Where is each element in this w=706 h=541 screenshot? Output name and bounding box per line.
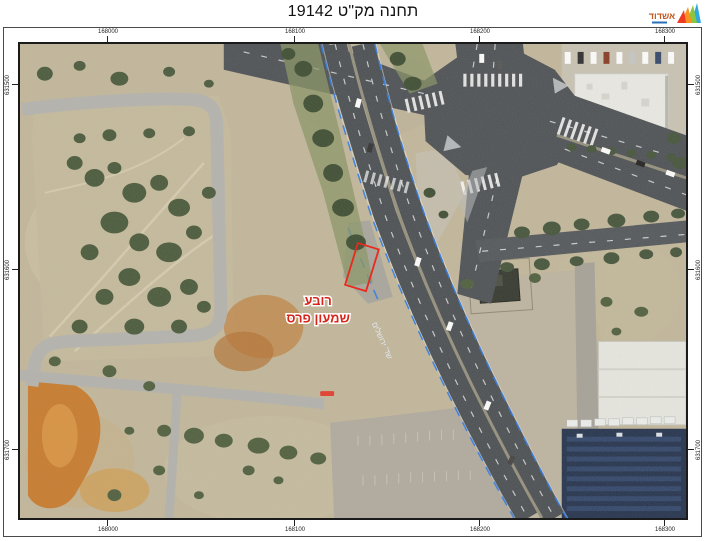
ashdod-logo-graphic: אשדוד [646, 2, 702, 28]
northing-label-right: 631600 [695, 252, 703, 288]
map-canvas: שד' ירושלים רובע שמעון פרס [18, 42, 688, 520]
district-label-line1: רובע [305, 293, 332, 308]
easting-label-top: 168000 [90, 29, 126, 36]
grid-tick [688, 84, 694, 85]
page-title: תחנה מק"ט 19142 [0, 3, 706, 21]
logo-city-name: אשדוד [649, 11, 675, 21]
small-red-marker [320, 391, 334, 396]
grid-tick [688, 449, 694, 450]
easting-label-bottom: 168000 [90, 527, 126, 534]
easting-label-top: 168200 [462, 29, 498, 36]
northing-label-right: 631500 [695, 67, 703, 103]
easting-label-bottom: 168300 [647, 527, 683, 534]
northing-label-left: 631600 [4, 252, 12, 288]
easting-label-top: 168100 [277, 29, 313, 36]
grid-tick [107, 520, 108, 526]
easting-label-bottom: 168100 [277, 527, 313, 534]
grid-tick [688, 269, 694, 270]
northing-label-left: 631500 [4, 67, 12, 103]
aerial-photo: שד' ירושלים רובע שמעון פרס [20, 44, 686, 518]
ashdod-logo: אשדוד [646, 2, 702, 28]
station-map-sheet: { "header": { "title": "תחנה מק\"ט 19142… [0, 0, 706, 541]
district-label-line2: שמעון פרס [286, 311, 349, 326]
grid-tick [294, 520, 295, 526]
photo-grain [20, 44, 686, 518]
northing-label-left: 631700 [4, 432, 12, 468]
logo-subtext-bar [652, 22, 667, 24]
grid-tick [479, 520, 480, 526]
easting-label-top: 168300 [647, 29, 683, 36]
easting-label-bottom: 168200 [462, 527, 498, 534]
logo-sail-red [677, 10, 686, 23]
grid-tick [664, 520, 665, 526]
northing-label-right: 631700 [695, 432, 703, 468]
